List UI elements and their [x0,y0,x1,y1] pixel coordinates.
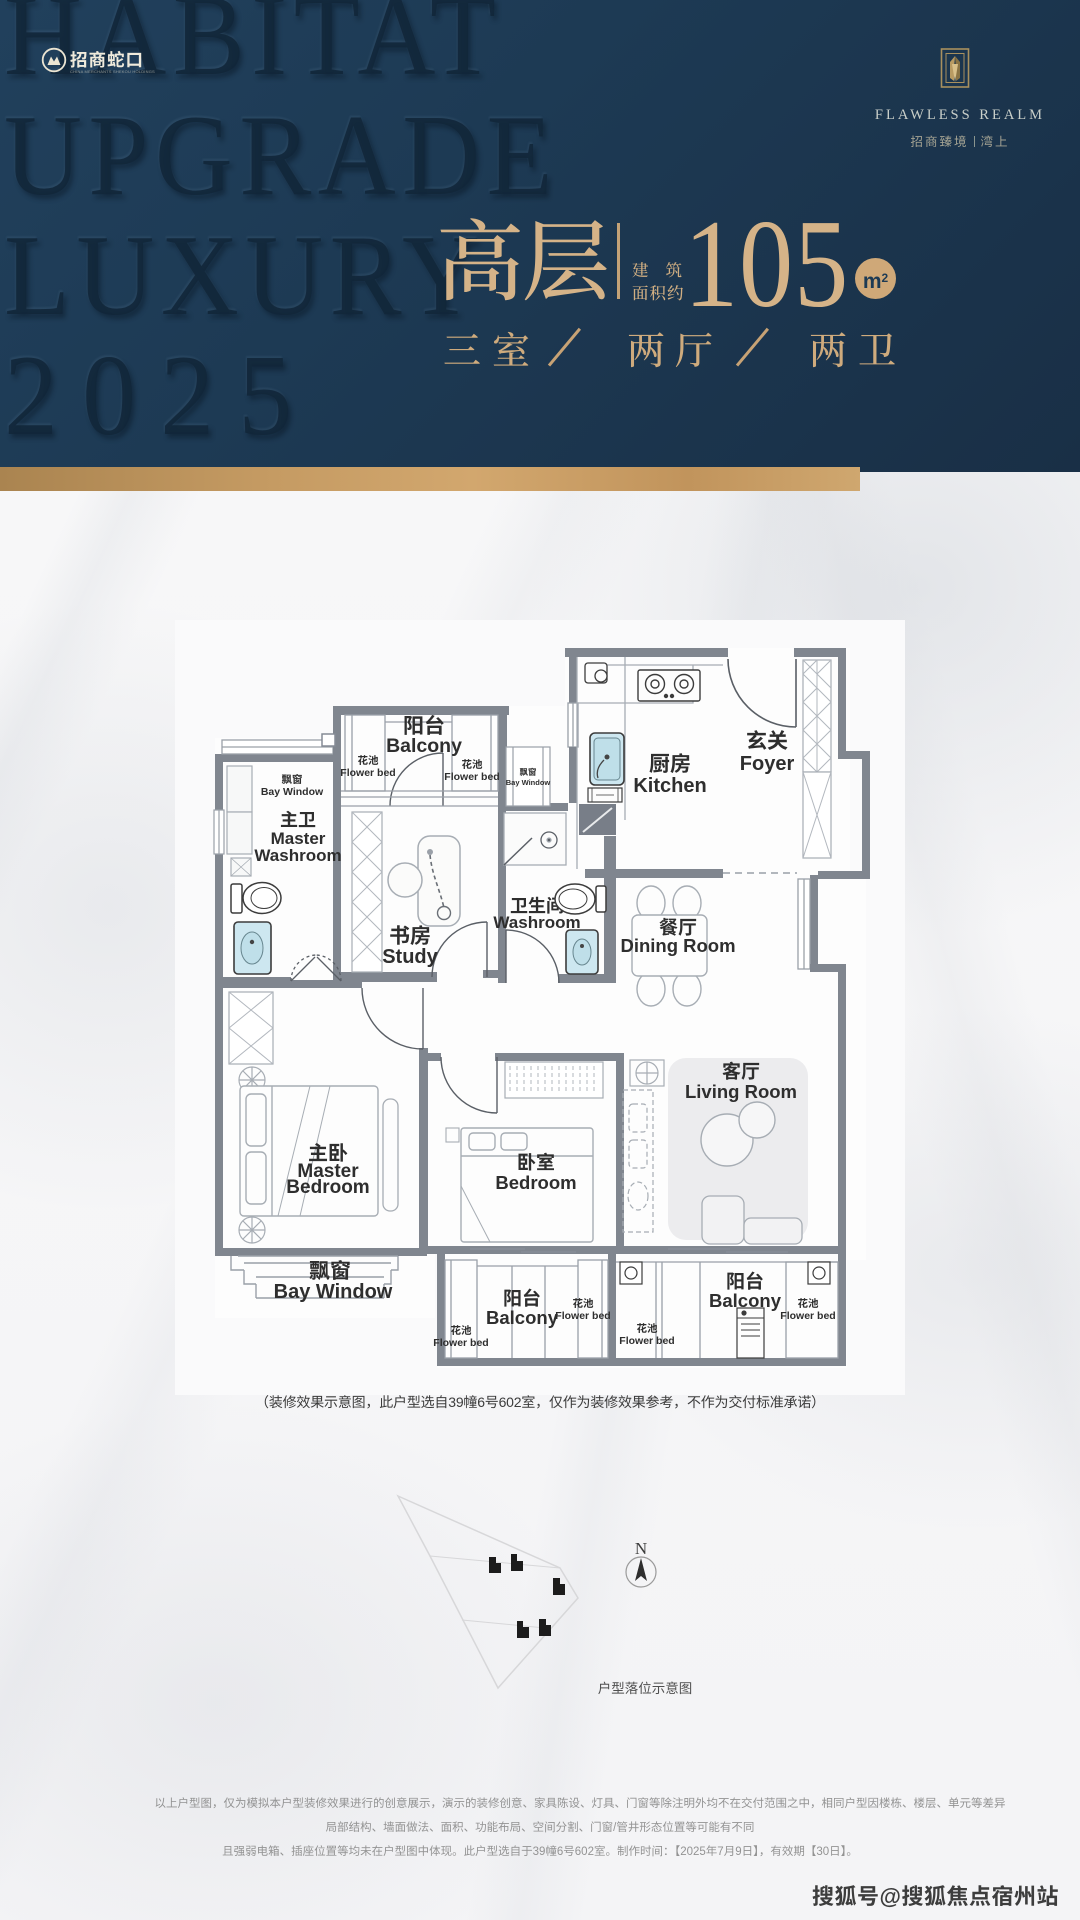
svg-text:N: N [635,1539,647,1558]
svg-text:Flower bed: Flower bed [444,771,499,783]
svg-text:花池: 花池 [798,1296,819,1311]
svg-text:花池: 花池 [462,757,483,772]
svg-text:Balcony: Balcony [709,1290,782,1311]
svg-text:花池: 花池 [637,1321,658,1336]
svg-text:花池: 花池 [451,1323,472,1338]
svg-text:Flower bed: Flower bed [433,1337,488,1349]
svg-text:Living Room: Living Room [685,1081,797,1102]
svg-text:卧室: 卧室 [517,1148,555,1175]
svg-text:Bedroom: Bedroom [495,1172,576,1193]
svg-text:Dining Room: Dining Room [620,935,735,956]
svg-text:Bay Window: Bay Window [506,778,551,787]
svg-text:Study: Study [382,946,438,968]
svg-text:Balcony: Balcony [386,735,462,757]
svg-text:Washroom: Washroom [493,913,580,932]
svg-text:Bay Window: Bay Window [261,786,324,798]
svg-text:Flower bed: Flower bed [555,1310,610,1322]
svg-text:花池: 花池 [358,753,379,768]
svg-text:Bay Window: Bay Window [274,1281,393,1303]
svg-text:户型落位示意图: 户型落位示意图 [598,1677,693,1697]
svg-text:Flower bed: Flower bed [340,767,395,779]
svg-text:玄关: 玄关 [746,725,788,755]
svg-text:客厅: 客厅 [722,1057,760,1084]
svg-text:飘窗: 飘窗 [519,766,537,778]
svg-text:Balcony: Balcony [486,1307,559,1328]
svg-text:飘窗: 飘窗 [282,772,303,787]
svg-text:Flower bed: Flower bed [619,1335,674,1347]
svg-text:Kitchen: Kitchen [633,775,706,797]
svg-text:厨房: 厨房 [649,748,691,778]
svg-text:Flower bed: Flower bed [780,1310,835,1322]
svg-text:Bedroom: Bedroom [286,1177,369,1198]
svg-text:花池: 花池 [573,1296,594,1311]
svg-text:Foyer: Foyer [740,753,795,775]
svg-text:Washroom: Washroom [254,846,341,865]
